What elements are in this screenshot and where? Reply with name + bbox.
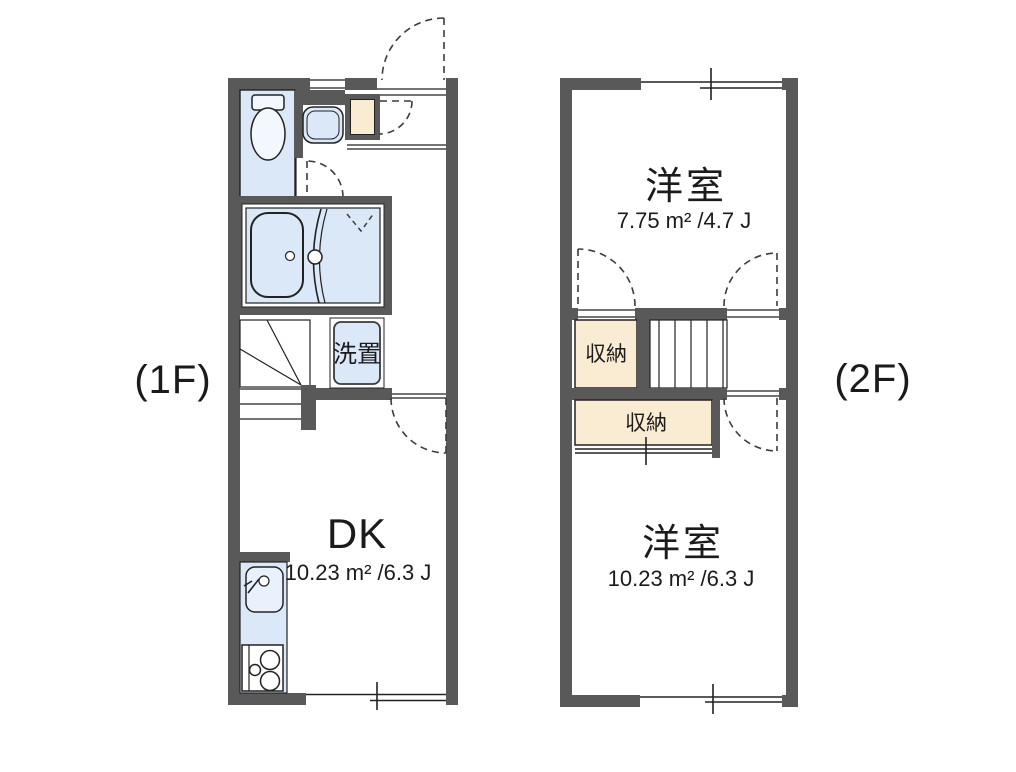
window-bottom-1f xyxy=(306,682,446,710)
washroom-door-swing xyxy=(307,161,343,197)
interior-wall-upper-2f xyxy=(560,308,798,320)
bedroom-lower-area: 10.23 m² /6.3 J xyxy=(608,566,755,591)
floor-2f-label: (2F) xyxy=(813,357,933,402)
bedroom-upper-label: 洋室 xyxy=(645,166,727,208)
storage-lower: 収納 xyxy=(575,400,720,465)
storage-upper-label: 収納 xyxy=(585,343,627,366)
laundry-label: 洗置 xyxy=(333,341,381,368)
floor-1f-plan: 洗置 xyxy=(220,10,470,710)
dk-room-area: 10.23 m² /6.3 J xyxy=(285,560,432,585)
stove-icon xyxy=(242,645,283,691)
window-top-1f xyxy=(310,78,345,90)
kitchen xyxy=(236,552,290,693)
window-top-2f xyxy=(641,68,782,100)
wall-stairs-left xyxy=(637,308,650,400)
kitchen-sink-icon xyxy=(244,567,283,612)
shoe-cabinet xyxy=(345,94,380,140)
toilet-room xyxy=(240,90,303,198)
genkan-door-swing xyxy=(379,101,412,134)
washbasin-icon xyxy=(303,107,343,143)
bedroom-upper-area: 7.75 m² /4.7 J xyxy=(617,208,752,233)
interior-wall-lower-2f xyxy=(560,388,798,400)
bedroom-lower-label: 洋室 xyxy=(642,523,724,565)
floor-1f-label: (1F) xyxy=(113,358,233,403)
dk-door-swing xyxy=(391,398,446,453)
interior-walls-1f xyxy=(301,385,446,430)
laundry-space: 洗置 xyxy=(330,318,384,388)
toilet-icon xyxy=(251,95,285,160)
bathroom xyxy=(234,196,392,315)
floor-2f-plan: 収納 収納 xyxy=(550,60,810,720)
dk-room-label: DK xyxy=(327,510,387,557)
floor-plan-canvas: (1F) (2F) xyxy=(0,0,1016,772)
washroom xyxy=(296,90,345,143)
window-bottom-2f xyxy=(640,684,782,714)
storage-lower-label: 収納 xyxy=(625,412,667,435)
stairs-1f xyxy=(240,320,310,419)
entrance-door-swing xyxy=(382,18,444,80)
stairs-2f xyxy=(650,320,727,388)
bedroom-upper-left-door-swing xyxy=(578,249,635,306)
bedroom-lower-door-swing xyxy=(724,398,777,451)
bedroom-upper-right-door-swing xyxy=(724,253,777,306)
